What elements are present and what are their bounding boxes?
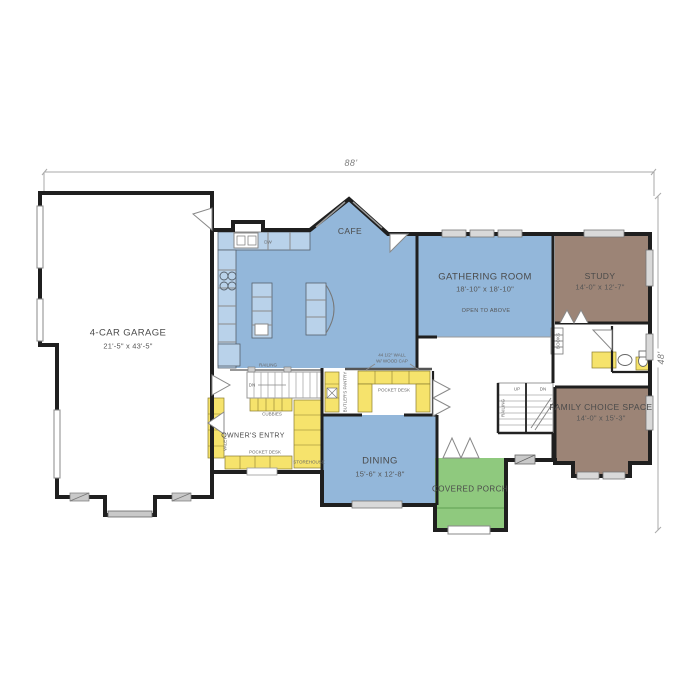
railing-post	[284, 367, 291, 372]
cubbies-label: CUBBIES	[262, 412, 282, 417]
railing-post	[248, 367, 255, 372]
covered-porch-area	[435, 458, 506, 530]
half-wall-label-2: W/ WOOD CAP	[376, 359, 408, 364]
garage-door-markers	[70, 493, 191, 517]
cubbies-cabinet	[250, 398, 292, 411]
dn-stairs-label: DN	[540, 387, 547, 392]
hall-side-window	[646, 334, 653, 360]
pocket-desk-counter	[225, 456, 292, 469]
half-wall-label-1: 44 1/2" WALL	[378, 353, 405, 358]
railing-entry-label: RAILING	[259, 363, 277, 368]
open-to-above-label: OPEN TO ABOVE	[462, 308, 511, 314]
storehouse-label: STOREHOUSE	[293, 460, 324, 465]
valet-label: VALET	[223, 437, 228, 451]
family-bay-window	[603, 472, 625, 479]
pocket-office-counter-top	[358, 371, 430, 384]
books-label: BOOKS	[556, 333, 561, 349]
pocket-office-door-upper	[433, 380, 450, 398]
front-door	[515, 455, 535, 464]
sink-window-bay	[233, 223, 263, 232]
pocket-office-door-lower	[433, 398, 450, 416]
kitchen-buffet	[306, 283, 326, 335]
garage-wall-trim	[37, 206, 43, 268]
pocket-desk-entry-label: POCKET DESK	[249, 450, 281, 455]
dn-entry-label: DN	[249, 383, 256, 388]
study-window	[584, 230, 624, 237]
covered-porch-label: COVERED PORCH	[432, 485, 508, 494]
pocket-desk-butler-label: POCKET DESK	[378, 388, 410, 393]
depth-dimension-label: 48'	[656, 349, 666, 368]
dining-label: DINING	[362, 456, 398, 467]
up-label: UP	[514, 387, 520, 392]
pocket-office-counter-left	[358, 384, 372, 412]
refrigerator	[218, 344, 240, 366]
garage-to-entry-door	[212, 375, 230, 395]
gathering-size-label: 18'-10" x 18'-10"	[456, 285, 514, 294]
gathering-window	[498, 230, 522, 237]
gathering-window	[470, 230, 494, 237]
garage-size-label: 21'-5" x 43'-5"	[103, 342, 152, 351]
porch-opening	[448, 526, 490, 534]
gathering-label: GATHERING ROOM	[438, 272, 532, 283]
owners-entry-exterior-door	[247, 468, 277, 475]
porch-french-door-left	[443, 438, 461, 458]
powder-door	[593, 330, 612, 350]
family-bay-window	[577, 472, 599, 479]
pocket-office-counter-right	[416, 384, 430, 412]
storehouse-cabinet	[294, 400, 322, 468]
butlers-pantry-label: BUTLER'S PANTRY	[343, 372, 348, 413]
garage-wall-trim	[54, 410, 60, 478]
island-sink	[255, 324, 268, 335]
porch-french-door-right	[461, 438, 479, 458]
study-label: STUDY	[585, 271, 616, 281]
dining-window	[352, 501, 402, 508]
study-side-window	[646, 250, 653, 286]
kitchen-sink	[234, 233, 258, 248]
garage-walls	[40, 193, 212, 515]
family-choice-size-label: 14'-0" x 15'-3"	[576, 414, 625, 423]
railing-stairs-label: RAILING	[501, 399, 506, 417]
family-choice-label: FAMILY CHOICE SPACE	[549, 402, 652, 412]
pedestal-sink	[618, 355, 632, 366]
garage-wall-trim	[37, 299, 43, 341]
study-size-label: 14'-0" x 12'-7"	[575, 283, 624, 292]
cafe-label: CAFE	[338, 226, 362, 236]
garage-label: 4-CAR GARAGE	[90, 328, 167, 339]
floor-plan-page: 88' 48' 4-CAR GARAGE 21'-5" x 43'-5" CAF…	[0, 0, 700, 700]
dining-size-label: 15'-6" x 12'-8"	[355, 470, 404, 479]
garage-service-door	[193, 208, 212, 230]
gathering-window	[442, 230, 466, 237]
width-dimension-label: 88'	[342, 158, 361, 168]
dw-label: DW	[264, 240, 272, 245]
owners-entry-label: OWNER'S ENTRY	[221, 433, 285, 440]
